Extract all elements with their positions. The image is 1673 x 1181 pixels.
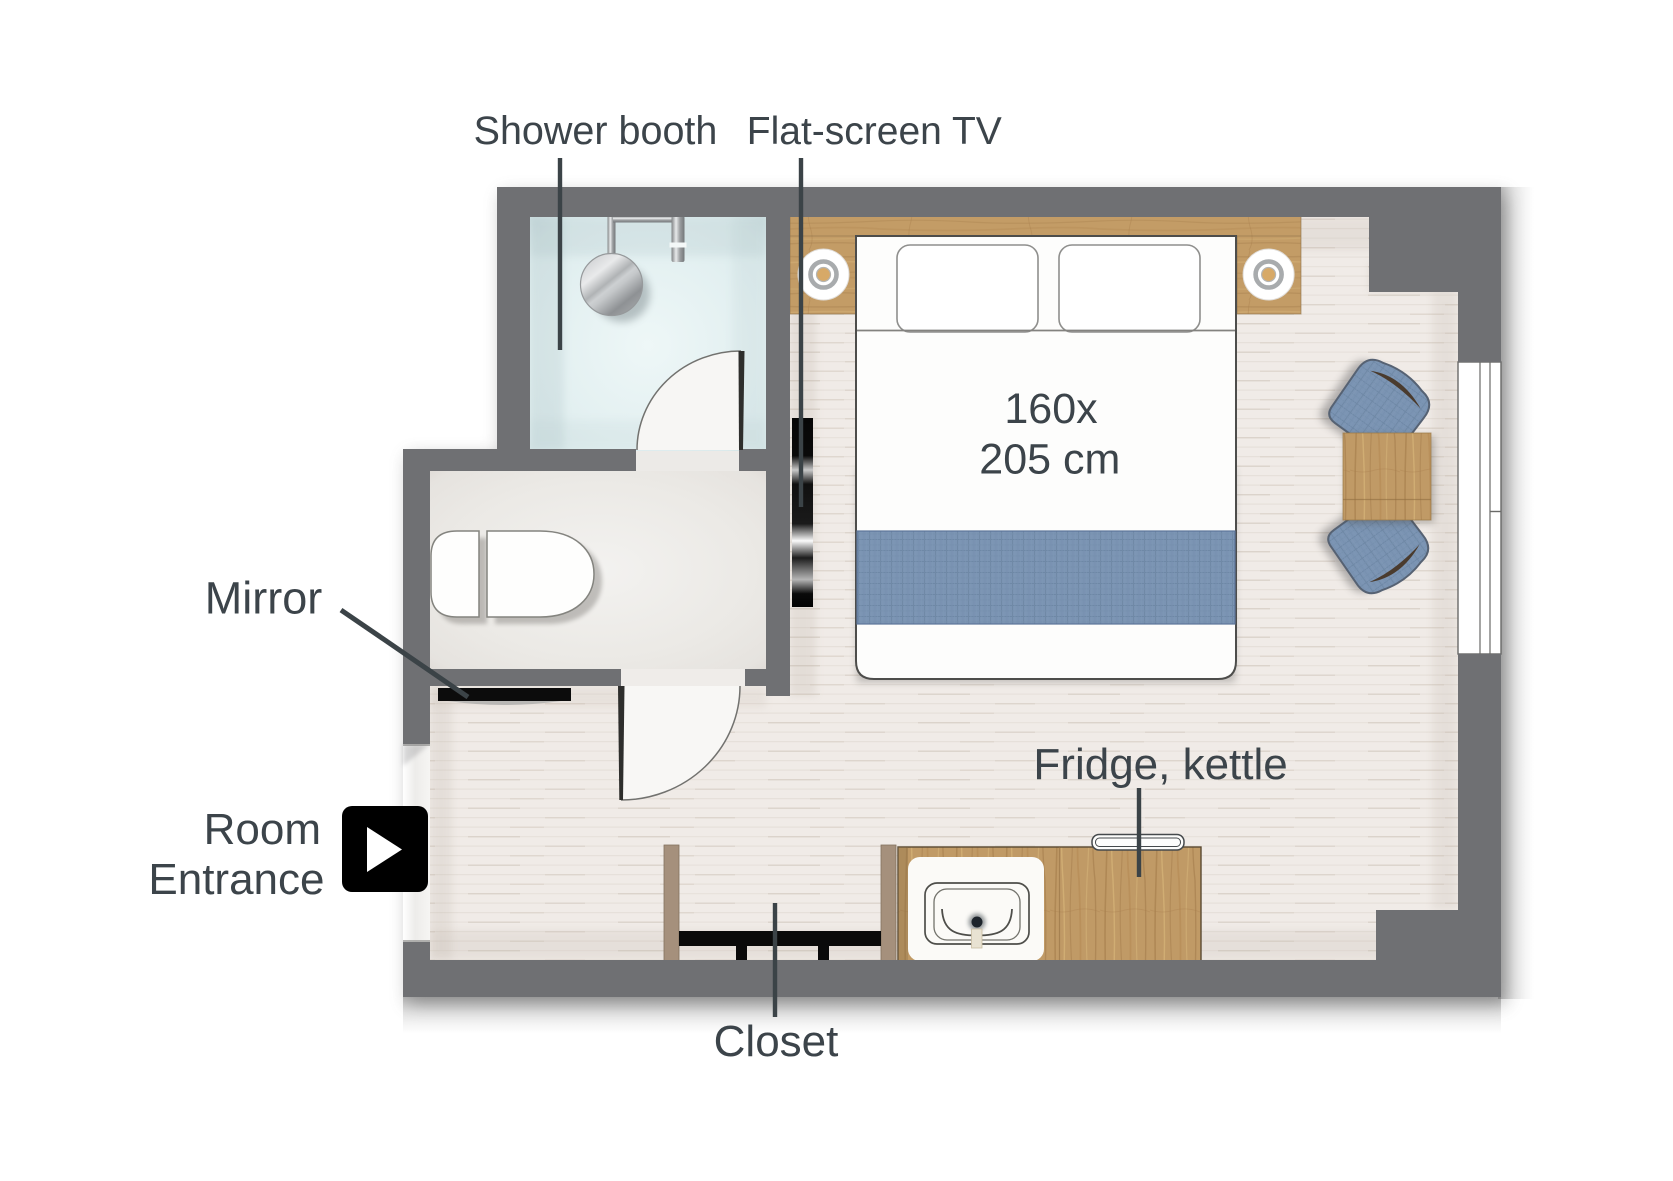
svg-text:Entrance: Entrance bbox=[148, 855, 324, 904]
svg-text:Fridge, kettle: Fridge, kettle bbox=[1033, 740, 1287, 789]
svg-text:Shower booth: Shower booth bbox=[474, 109, 718, 153]
svg-text:Room: Room bbox=[204, 805, 321, 854]
svg-text:160x: 160x bbox=[1004, 385, 1098, 433]
svg-text:205 cm: 205 cm bbox=[979, 436, 1120, 484]
svg-text:Mirror: Mirror bbox=[205, 573, 322, 624]
svg-text:Flat-screen TV: Flat-screen TV bbox=[747, 110, 1002, 153]
svg-text:Closet: Closet bbox=[714, 1017, 839, 1066]
